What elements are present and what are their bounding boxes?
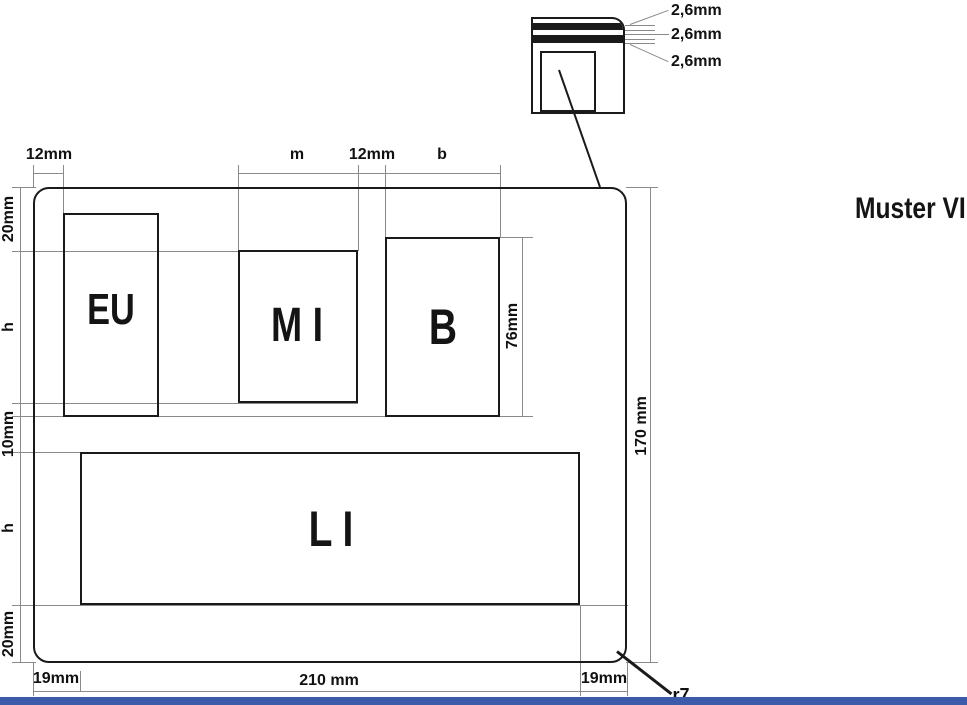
dim-label-top-mid-12mm: 12mm: [349, 147, 395, 163]
dim-label-left-h-top: h: [1, 322, 17, 332]
dim-line-170mm: [650, 187, 651, 663]
dim-label-top-left-12mm: 12mm: [26, 147, 72, 163]
mi-field-letters: M I: [271, 302, 323, 350]
drawing-title: Muster VIII: [855, 194, 967, 224]
detail-tick-2: [625, 30, 655, 31]
detail-tick-3: [625, 34, 669, 35]
ext-line-plate-right-down: [627, 663, 628, 696]
dim-label-left-20mm-top: 20mm: [1, 196, 17, 242]
detail-leader-1: [630, 10, 669, 25]
dim-line-bottom-width: [33, 691, 627, 692]
detail-inner-rect: [540, 51, 596, 112]
ext-line-li-left-down: [80, 671, 81, 692]
li-field-letters: L I: [309, 504, 354, 554]
dim-label-left-20mm-bottom: 20mm: [1, 611, 17, 657]
dim-label-left-10mm: 10mm: [1, 411, 17, 457]
detail-label-26mm-2: 2,6mm: [671, 27, 722, 43]
eu-field-letters: EU: [87, 288, 135, 332]
dim-line-top-left-12mm: [33, 173, 64, 174]
dim-label-170mm: 170 mm: [634, 396, 650, 456]
detail-leader-3: [630, 44, 669, 62]
technical-drawing-canvas: EU M I B L I 12mm m 12mm b 20mm h 10mm h…: [0, 0, 967, 705]
dim-label-bottom-19mm-right: 19mm: [581, 671, 627, 687]
detail-label-26mm-3: 2,6mm: [671, 54, 722, 70]
dim-label-b: b: [437, 147, 447, 163]
b-field-letter: B: [429, 302, 457, 352]
detail-layer-bars-clip: [533, 19, 623, 45]
detail-layer-bar-2: [533, 35, 623, 43]
bottom-window-edge-bar: [0, 697, 967, 705]
dim-chain-line-left: [20, 187, 21, 663]
detail-layer-bar-1: [533, 23, 623, 30]
dim-line-top-m-12-b: [238, 173, 501, 174]
detail-tick-4: [625, 39, 655, 40]
dim-label-76mm: 76mm: [505, 303, 521, 349]
dim-label-bottom-19mm-left: 19mm: [33, 671, 79, 687]
dim-label-m: m: [290, 147, 304, 163]
detail-label-26mm-1: 2,6mm: [671, 3, 722, 19]
ext-line-plate-left-up: [33, 165, 34, 188]
dim-label-left-h-bottom: h: [1, 523, 17, 533]
ext-line-plate-top-right: [626, 187, 658, 188]
dim-label-bottom-210mm: 210 mm: [299, 673, 359, 689]
